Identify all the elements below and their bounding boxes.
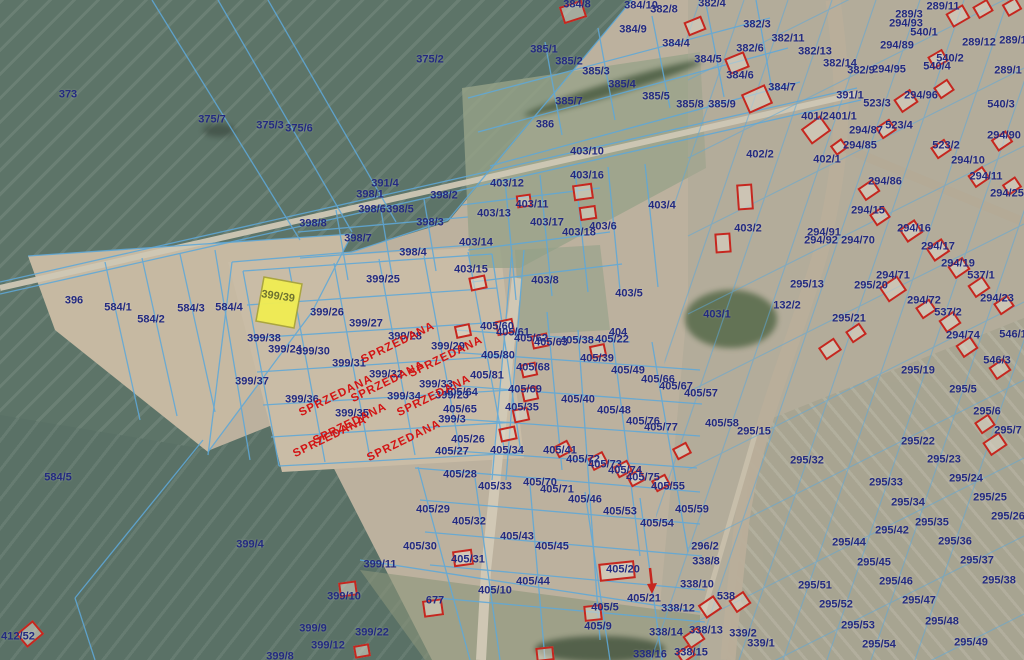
parcel-label-375-7: 375/7 xyxy=(198,115,226,126)
parcel-label-405-28: 405/28 xyxy=(443,470,477,481)
parcel-label-294-74: 294/74 xyxy=(946,331,980,342)
parcel-label-295-23: 295/23 xyxy=(927,455,961,466)
parcel-label-399-10: 399/10 xyxy=(327,592,361,603)
parcel-label-295-20: 295/20 xyxy=(854,281,888,292)
parcel-label-295-33: 295/33 xyxy=(869,478,903,489)
parcel-label-289-1: 289/1 xyxy=(999,36,1024,47)
parcel-label-405-34: 405/34 xyxy=(490,446,524,457)
parcel-label-396: 396 xyxy=(65,296,83,307)
parcel-label-338-8: 338/8 xyxy=(692,557,720,568)
parcel-label-399-37: 399/37 xyxy=(235,377,269,388)
parcel-boundary-line xyxy=(645,164,658,287)
parcel-boundary-line xyxy=(424,199,436,271)
parcel-label-405-35: 405/35 xyxy=(505,403,539,414)
parcel-label-385-2: 385/2 xyxy=(555,57,583,68)
parcel-label-412-52: 412/52 xyxy=(1,632,35,643)
parcel-label-405-81: 405/81 xyxy=(470,371,504,382)
parcel-label-523-2: 523/2 xyxy=(932,141,960,152)
parcel-label-295-42: 295/42 xyxy=(875,526,909,537)
parcel-label-405-21: 405/21 xyxy=(627,594,661,605)
parcel-label-295-38: 295/38 xyxy=(982,576,1016,587)
parcel-label-584-2: 584/2 xyxy=(137,315,165,326)
parcel-label-294-90: 294/90 xyxy=(987,131,1021,142)
parcel-label-399-8: 399/8 xyxy=(266,652,294,660)
parcel-label-405-33: 405/33 xyxy=(478,482,512,493)
parcel-label-295-6: 295/6 xyxy=(973,407,1001,418)
parcel-label-403-14: 403/14 xyxy=(459,238,493,249)
parcel-label-338-13: 338/13 xyxy=(689,626,723,637)
parcel-label-391-1: 391/1 xyxy=(836,91,864,102)
parcel-label-295-7: 295/7 xyxy=(994,426,1022,437)
parcel-label-398-7: 398/7 xyxy=(344,234,372,245)
parcel-boundary-line xyxy=(379,259,415,455)
parcel-label-405-39: 405/39 xyxy=(580,354,614,365)
parcel-label-405-43: 405/43 xyxy=(500,532,534,543)
parcel-label-403-11: 403/11 xyxy=(515,200,548,211)
map-canvas[interactable]: 384/8384/10289/11382/8382/4289/3294/9338… xyxy=(0,0,1024,660)
parcel-label-405-44: 405/44 xyxy=(516,577,550,588)
parcel-boundary-line xyxy=(312,234,352,312)
parcel-boundary-line xyxy=(706,4,724,97)
parcel-label-385-8: 385/8 xyxy=(676,100,704,111)
parcel-label-546-1: 546/1 xyxy=(999,330,1024,341)
parcel-label-403-10: 403/10 xyxy=(570,147,604,158)
parcel-label-523-4: 523/4 xyxy=(885,121,913,132)
parcel-label-405-9: 405/9 xyxy=(584,622,612,633)
parcel-label-384-9: 384/9 xyxy=(619,25,647,36)
parcel-label-584-4: 584/4 xyxy=(215,303,243,314)
parcel-label-405-27: 405/27 xyxy=(435,447,469,458)
parcel-label-403-12: 403/12 xyxy=(490,179,524,190)
parcel-label-385-5: 385/5 xyxy=(642,92,670,103)
parcel-boundary-line xyxy=(279,453,521,466)
parcel-label-398-3: 398/3 xyxy=(416,218,444,229)
parcel-boundary-line xyxy=(142,258,177,416)
parcel-label-382-8: 382/8 xyxy=(650,5,678,16)
parcel-label-399-22: 399/22 xyxy=(355,628,389,639)
parcel-label-294-85: 294/85 xyxy=(843,141,877,152)
parcel-label-382-4: 382/4 xyxy=(698,0,726,10)
parcel-label-398-5: 398/5 xyxy=(386,205,414,216)
parcel-label-295-19: 295/19 xyxy=(901,366,935,377)
parcel-label-294-72: 294/72 xyxy=(907,296,941,307)
parcel-label-295-26: 295/26 xyxy=(991,512,1024,523)
parcel-label-294-70: 294/70 xyxy=(841,236,875,247)
building-outline xyxy=(572,183,594,202)
parcel-label-405-54: 405/54 xyxy=(640,519,674,530)
parcel-boundary-line xyxy=(180,254,215,412)
parcel-label-294-89: 294/89 xyxy=(880,41,914,52)
parcel-label-405-29: 405/29 xyxy=(416,505,450,516)
parcel-label-295-22: 295/22 xyxy=(901,437,935,448)
parcel-label-373: 373 xyxy=(59,90,77,101)
parcel-label-295-54: 295/54 xyxy=(862,640,896,651)
parcel-label-295-48: 295/48 xyxy=(925,617,959,628)
parcel-label-403-15: 403/15 xyxy=(454,265,488,276)
parcel-label-294-16: 294/16 xyxy=(897,224,931,235)
building-outline xyxy=(714,232,731,253)
parcel-label-540-4: 540/4 xyxy=(923,62,951,73)
parcel-label-399-3: 399/3 xyxy=(438,415,466,426)
parcel-label-584-3: 584/3 xyxy=(177,304,205,315)
parcel-label-384-5: 384/5 xyxy=(694,55,722,66)
parcel-label-294-19: 294/19 xyxy=(941,259,975,270)
parcel-label-405-20: 405/20 xyxy=(606,565,640,576)
parcel-label-403-18: 403/18 xyxy=(562,228,596,239)
parcel-label-540-3: 540/3 xyxy=(987,100,1015,111)
parcel-label-289-12: 289/12 xyxy=(962,38,996,49)
parcel-label-295-13: 295/13 xyxy=(790,280,824,291)
parcel-label-294-25: 294/25 xyxy=(990,189,1024,200)
parcel-label-405-32: 405/32 xyxy=(452,517,486,528)
parcel-label-384-7: 384/7 xyxy=(768,83,796,94)
parcel-label-399-4: 399/4 xyxy=(236,540,264,551)
parcel-label-405-30: 405/30 xyxy=(403,542,437,553)
parcel-boundary-line xyxy=(232,252,352,262)
parcel-label-405-69: 405/69 xyxy=(508,385,542,396)
parcel-label-537-2: 537/2 xyxy=(934,308,962,319)
parcel-label-403-4: 403/4 xyxy=(648,201,676,212)
parcel-label-399-11: 399/11 xyxy=(363,560,396,571)
parcel-label-405-10: 405/10 xyxy=(478,586,512,597)
parcel-label-375-3: 375/3 xyxy=(256,121,284,132)
sold-arrow-icon xyxy=(647,568,657,594)
parcel-label-295-46: 295/46 xyxy=(879,577,913,588)
parcel-label-398-2: 398/2 xyxy=(430,191,458,202)
parcel-label-405-26: 405/26 xyxy=(451,435,485,446)
parcel-label-399-9: 399/9 xyxy=(299,624,327,635)
parcel-label-295-15: 295/15 xyxy=(737,427,771,438)
parcel-label-384-6: 384/6 xyxy=(726,71,754,82)
parcel-label-294-17: 294/17 xyxy=(921,242,955,253)
parcel-label-375-6: 375/6 xyxy=(285,124,313,135)
parcel-label-289-11: 289/11 xyxy=(926,2,959,13)
parcel-label-677: 677 xyxy=(426,596,444,607)
parcel-label-403-5: 403/5 xyxy=(615,289,643,300)
parcel-label-295-51: 295/51 xyxy=(798,581,832,592)
parcel-label-295-36: 295/36 xyxy=(938,537,972,548)
parcel-label-294-87: 294/87 xyxy=(849,126,883,137)
building-outline xyxy=(353,643,371,659)
parcel-label-382-6: 382/6 xyxy=(736,44,764,55)
parcel-label-403-8: 403/8 xyxy=(531,276,559,287)
parcel-label-405-80: 405/80 xyxy=(481,351,515,362)
parcel-boundary-line xyxy=(75,440,203,598)
parcel-label-403-2: 403/2 xyxy=(734,224,762,235)
parcel-label-289-1: 289/1 xyxy=(994,66,1022,77)
parcel-label-399-30: 399/30 xyxy=(296,347,330,358)
parcel-label-398-6: 398/6 xyxy=(358,205,386,216)
parcel-label-338-16: 338/16 xyxy=(633,650,667,660)
parcel-boundary-line xyxy=(208,262,232,455)
parcel-label-294-95: 294/95 xyxy=(872,65,906,76)
parcel-label-584-5: 584/5 xyxy=(44,473,72,484)
parcel-label-295-34: 295/34 xyxy=(891,498,925,509)
parcel-label-132-2: 132/2 xyxy=(773,301,801,312)
parcel-label-382-9: 382/9 xyxy=(847,66,875,77)
parcel-label-295-5: 295/5 xyxy=(949,385,977,396)
parcel-label-294-11: 294/11 xyxy=(969,172,1002,183)
parcel-label-403-16: 403/16 xyxy=(570,171,604,182)
parcel-label-384-8: 384/8 xyxy=(563,0,591,11)
parcel-label-338-14: 338/14 xyxy=(649,628,683,639)
parcel-label-384-4: 384/4 xyxy=(662,39,690,50)
parcel-label-295-52: 295/52 xyxy=(819,600,853,611)
parcel-label-382-13: 382/13 xyxy=(798,47,832,58)
parcel-label-405-53: 405/53 xyxy=(603,507,637,518)
parcel-label-295-44: 295/44 xyxy=(832,538,866,549)
parcel-boundary-line xyxy=(300,245,472,258)
parcel-label-385-7: 385/7 xyxy=(555,97,583,108)
parcel-label-405-49: 405/49 xyxy=(611,366,645,377)
parcel-label-296-2: 296/2 xyxy=(691,542,719,553)
parcel-label-401-1: 401/1 xyxy=(829,112,857,123)
building-outline xyxy=(736,183,754,210)
parcel-label-405-55: 405/55 xyxy=(651,482,685,493)
parcel-label-399-26: 399/26 xyxy=(310,308,344,319)
parcel-label-584-1: 584/1 xyxy=(104,303,132,314)
parcel-label-538: 538 xyxy=(717,592,735,603)
parcel-label-385-1: 385/1 xyxy=(530,45,558,56)
parcel-label-405-46: 405/46 xyxy=(568,495,602,506)
parcel-label-375-2: 375/2 xyxy=(416,55,444,66)
parcel-label-546-3: 546/3 xyxy=(983,356,1011,367)
parcel-label-398-1: 398/1 xyxy=(356,190,384,201)
parcel-label-295-47: 295/47 xyxy=(902,596,936,607)
parcel-boundary-line xyxy=(530,485,545,660)
parcel-label-294-10: 294/10 xyxy=(951,156,985,167)
parcel-label-399-25: 399/25 xyxy=(366,275,400,286)
parcel-label-405-68: 405/68 xyxy=(516,363,550,374)
parcel-label-537-1: 537/1 xyxy=(967,271,995,282)
parcel-boundary-line xyxy=(688,224,1024,392)
parcel-label-523-3: 523/3 xyxy=(863,99,891,110)
building-outline xyxy=(579,205,598,221)
parcel-label-403-13: 403/13 xyxy=(477,209,511,220)
parcel-label-295-32: 295/32 xyxy=(790,456,824,467)
parcel-label-294-86: 294/86 xyxy=(868,177,902,188)
parcel-label-294-23: 294/23 xyxy=(980,294,1014,305)
parcel-label-295-49: 295/49 xyxy=(954,638,988,649)
parcel-boundary-line xyxy=(0,88,857,282)
parcel-label-402-1: 402/1 xyxy=(813,155,841,166)
parcel-boundary-line xyxy=(218,0,352,232)
parcel-label-405-31: 405/31 xyxy=(451,555,485,566)
parcel-label-385-4: 385/4 xyxy=(608,80,636,91)
parcel-label-294-96: 294/96 xyxy=(904,91,938,102)
parcel-label-385-3: 385/3 xyxy=(582,67,610,78)
parcel-label-295-25: 295/25 xyxy=(973,493,1007,504)
parcel-label-338-15: 338/15 xyxy=(674,648,708,659)
parcel-label-295-45: 295/45 xyxy=(857,558,891,569)
parcel-label-382-11: 382/11 xyxy=(771,34,804,45)
parcel-label-294-92: 294/92 xyxy=(804,236,838,247)
parcel-label-405-77: 405/77 xyxy=(644,423,678,434)
parcel-boundary-line xyxy=(105,262,140,420)
parcel-label-405-40: 405/40 xyxy=(561,395,595,406)
parcel-label-385-9: 385/9 xyxy=(708,100,736,111)
parcel-label-294-15: 294/15 xyxy=(851,206,885,217)
building-outline xyxy=(535,646,554,660)
parcel-label-399-27: 399/27 xyxy=(349,319,383,330)
parcel-label-398-8: 398/8 xyxy=(299,219,327,230)
parcel-label-402-2: 402/2 xyxy=(746,150,774,161)
parcel-label-399-12: 399/12 xyxy=(311,641,345,652)
parcel-label-386: 386 xyxy=(536,120,554,131)
parcel-label-405-59: 405/59 xyxy=(675,505,709,516)
parcel-label-338-10: 338/10 xyxy=(680,580,714,591)
parcel-boundary-line xyxy=(75,598,95,660)
parcel-label-338-12: 338/12 xyxy=(661,604,695,615)
parcel-label-382-3: 382/3 xyxy=(743,20,771,31)
parcel-label-295-35: 295/35 xyxy=(915,518,949,529)
parcel-label-401-2: 401/2 xyxy=(801,112,829,123)
parcel-label-405-63: 405/63 xyxy=(534,338,568,349)
parcel-label-405-22: 405/22 xyxy=(595,335,629,346)
parcel-boundary-line xyxy=(28,234,352,256)
parcel-label-295-53: 295/53 xyxy=(841,621,875,632)
parcel-label-405-57: 405/57 xyxy=(684,389,718,400)
parcel-label-339-1: 339/1 xyxy=(747,639,775,650)
parcel-label-405-5: 405/5 xyxy=(591,603,619,614)
parcel-label-405-45: 405/45 xyxy=(535,542,569,553)
parcel-label-295-24: 295/24 xyxy=(949,474,983,485)
parcel-label-398-4: 398/4 xyxy=(399,248,427,259)
parcel-label-403-17: 403/17 xyxy=(530,218,564,229)
parcel-label-540-1: 540/1 xyxy=(910,28,938,39)
parcel-label-295-37: 295/37 xyxy=(960,556,994,567)
parcel-label-295-21: 295/21 xyxy=(832,314,866,325)
parcel-label-403-1: 403/1 xyxy=(703,310,731,321)
parcel-label-405-58: 405/58 xyxy=(705,419,739,430)
